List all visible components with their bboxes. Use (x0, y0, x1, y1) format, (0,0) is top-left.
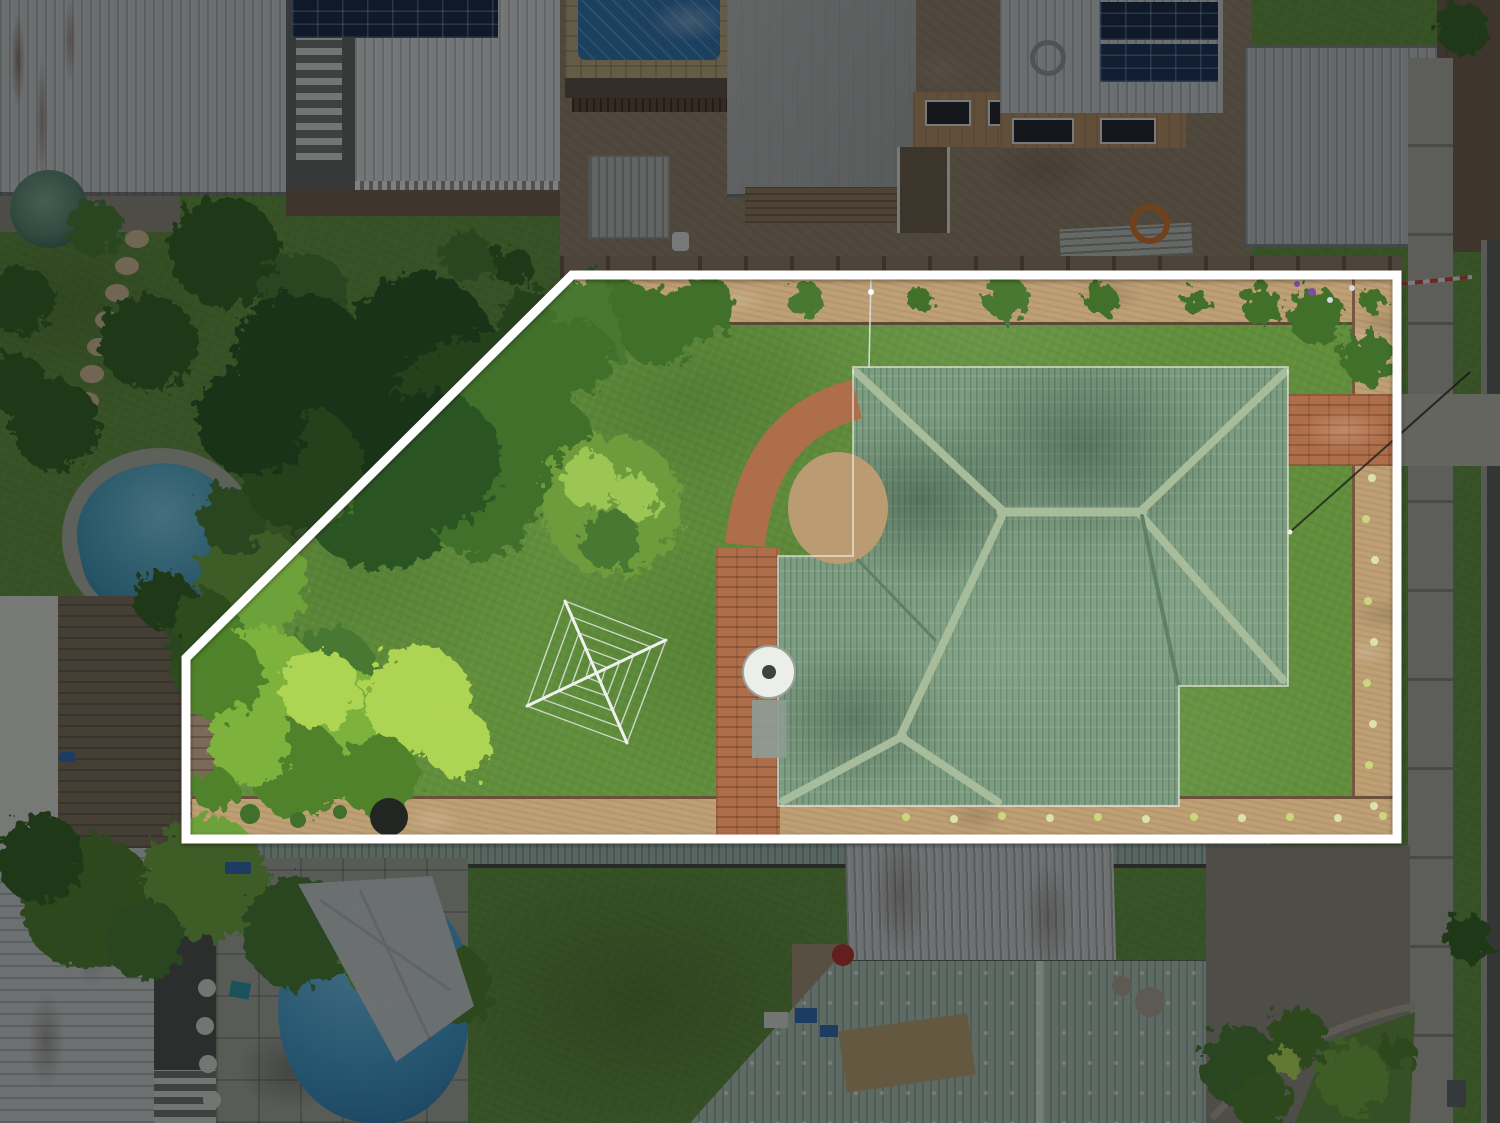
tree-canopy (788, 282, 824, 318)
tree-canopy (908, 288, 932, 312)
garden-flower (333, 805, 347, 819)
rotary-clothesline (527, 601, 666, 743)
tree-canopy (1086, 284, 1118, 316)
aerial-photo (0, 0, 1500, 1123)
tree-canopy (608, 280, 648, 320)
garden-flower (1046, 814, 1054, 822)
utility-wires (868, 276, 1470, 535)
yard-object (370, 798, 408, 836)
tree-canopy (193, 768, 237, 812)
garden-flower (1365, 761, 1373, 769)
garden-flower (1362, 515, 1370, 523)
tree-canopy (1242, 286, 1282, 326)
garden-flower (1094, 813, 1102, 821)
garden-flower (1308, 288, 1316, 296)
garden-flower (1286, 813, 1294, 821)
garden-flower (1334, 814, 1342, 822)
garden-flower (1364, 597, 1372, 605)
garden-flower (1368, 474, 1376, 482)
roof-ridge (1140, 514, 1283, 680)
tree-canopy (562, 452, 618, 508)
roof-ridge (858, 560, 935, 640)
dirt-garden-circle (788, 452, 888, 564)
tree-canopy (424, 709, 492, 777)
garden-flower (290, 812, 306, 828)
tree-canopy (1360, 288, 1384, 312)
tree-canopy (1288, 288, 1344, 344)
overlay-graphics (0, 0, 1500, 1123)
garden-flower (1238, 814, 1246, 822)
garden-flower (902, 813, 910, 821)
garden-flower (1294, 281, 1300, 287)
roof-ridge (901, 514, 1003, 735)
roof-ridge (901, 737, 998, 802)
garden-flower (950, 815, 958, 823)
tree-canopy (614, 474, 658, 518)
outside-dim-overlay (0, 0, 1500, 1123)
garden-flower (1371, 556, 1379, 564)
garden-flower (1369, 720, 1377, 728)
garden-flower (240, 804, 260, 824)
garden-flower (1370, 802, 1378, 810)
garden-flower (1327, 297, 1333, 303)
tree-canopy (984, 276, 1028, 320)
tree-canopy (280, 650, 360, 730)
tree-canopy (1183, 289, 1209, 315)
roof-ridge (783, 736, 903, 801)
tree-canopy (1342, 332, 1394, 384)
garden-flower (1190, 813, 1198, 821)
satellite-dish (743, 646, 795, 758)
roof-ridge (1140, 372, 1285, 512)
garden-flower (998, 812, 1006, 820)
garden-flower (1370, 638, 1378, 646)
roof-ridges (783, 372, 1285, 802)
garden-flower (1363, 679, 1371, 687)
garden-flower (1349, 285, 1355, 291)
tree-canopy (542, 320, 614, 392)
garden-flower (1142, 815, 1150, 823)
roof-gutter-outline (778, 367, 1288, 806)
tree-canopy (704, 282, 732, 310)
garden-flower (1379, 812, 1387, 820)
tree-canopy (580, 510, 640, 570)
